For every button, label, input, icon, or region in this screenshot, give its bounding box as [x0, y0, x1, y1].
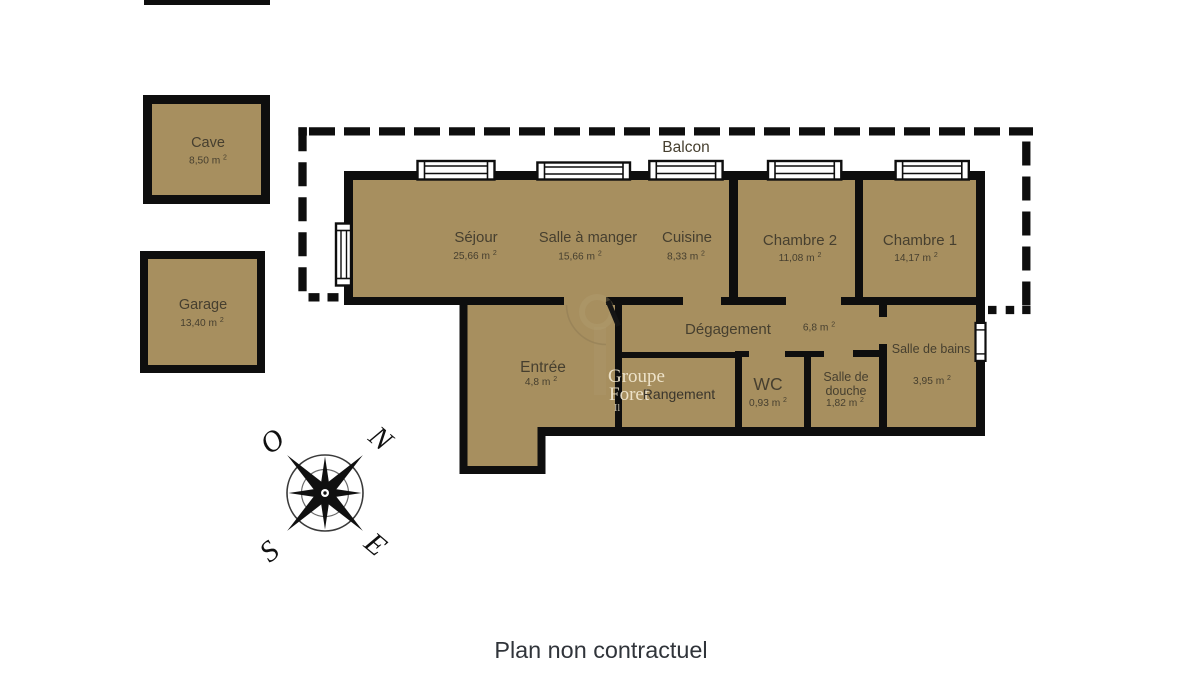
svg-text:Rangement: Rangement: [643, 386, 715, 402]
svg-text:Balcon: Balcon: [662, 139, 709, 156]
svg-text:Cave: Cave: [191, 135, 225, 151]
svg-text:Il: Il: [614, 403, 620, 414]
svg-text:Séjour: Séjour: [454, 229, 497, 246]
svg-text:Salle de: Salle de: [823, 370, 868, 384]
svg-text:0,93 m 2: 0,93 m 2: [749, 397, 787, 409]
svg-text:13,40 m 2: 13,40 m 2: [180, 317, 224, 329]
svg-text:15,66 m 2: 15,66 m 2: [558, 251, 602, 263]
svg-text:Plan non contractuel: Plan non contractuel: [494, 637, 707, 663]
svg-text:6,8 m 2: 6,8 m 2: [803, 322, 835, 334]
svg-text:Garage: Garage: [179, 297, 227, 313]
svg-text:Entrée: Entrée: [520, 359, 566, 376]
svg-text:14,17 m 2: 14,17 m 2: [894, 252, 938, 264]
svg-text:Salle à manger: Salle à manger: [539, 230, 637, 246]
svg-text:8,50 m 2: 8,50 m 2: [189, 155, 227, 167]
svg-text:1,82 m 2: 1,82 m 2: [826, 397, 864, 409]
svg-text:Chambre 2: Chambre 2: [763, 232, 837, 249]
svg-text:douche: douche: [825, 384, 866, 398]
svg-text:Cuisine: Cuisine: [662, 229, 712, 246]
svg-text:WC: WC: [753, 374, 782, 394]
svg-text:4,8 m 2: 4,8 m 2: [525, 376, 557, 388]
svg-text:Chambre 1: Chambre 1: [883, 232, 957, 249]
svg-text:Dégagement: Dégagement: [685, 321, 772, 338]
svg-text:8,33 m 2: 8,33 m 2: [667, 251, 705, 263]
svg-text:25,66 m 2: 25,66 m 2: [453, 250, 497, 262]
svg-text:Salle de bains: Salle de bains: [892, 342, 971, 356]
svg-text:3,95 m 2: 3,95 m 2: [913, 375, 951, 387]
svg-text:11,08 m 2: 11,08 m 2: [779, 252, 822, 264]
